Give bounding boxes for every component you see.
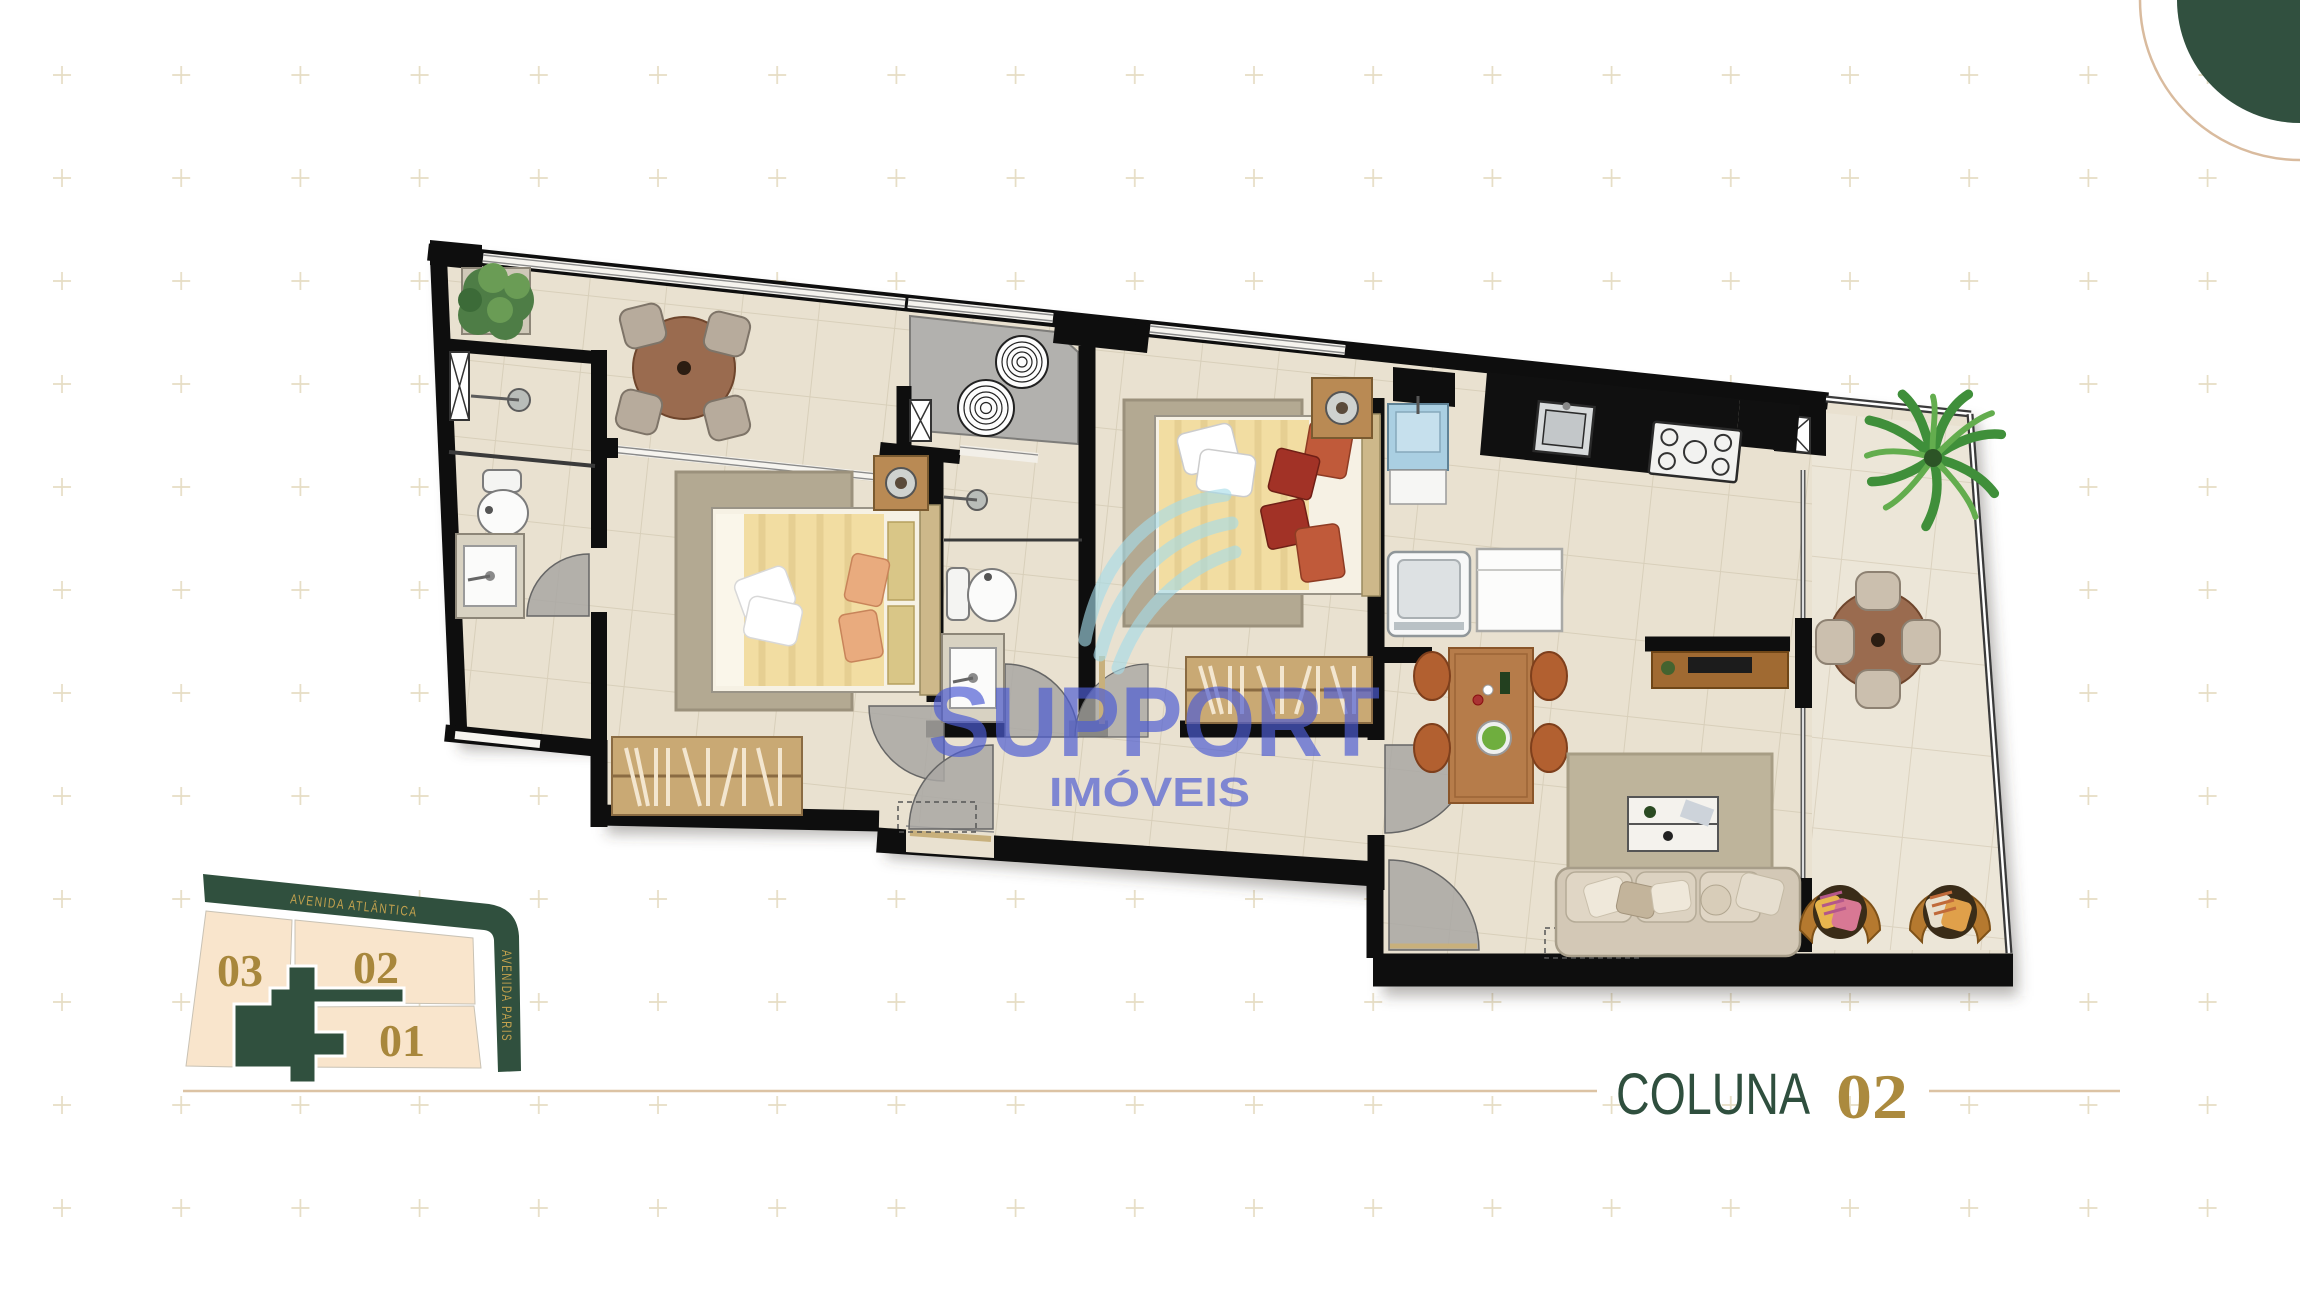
svg-text:SUPPORT: SUPPORT <box>928 666 1380 777</box>
svg-text:02: 02 <box>353 942 399 993</box>
svg-text:COLUNA: COLUNA <box>1616 1062 1810 1127</box>
svg-text:03: 03 <box>217 945 263 996</box>
svg-text:01: 01 <box>379 1015 425 1066</box>
svg-text:IMÓVEIS: IMÓVEIS <box>1049 769 1250 815</box>
svg-text:AVENIDA PARIS: AVENIDA PARIS <box>499 950 514 1042</box>
svg-text:02: 02 <box>1836 1061 1908 1132</box>
